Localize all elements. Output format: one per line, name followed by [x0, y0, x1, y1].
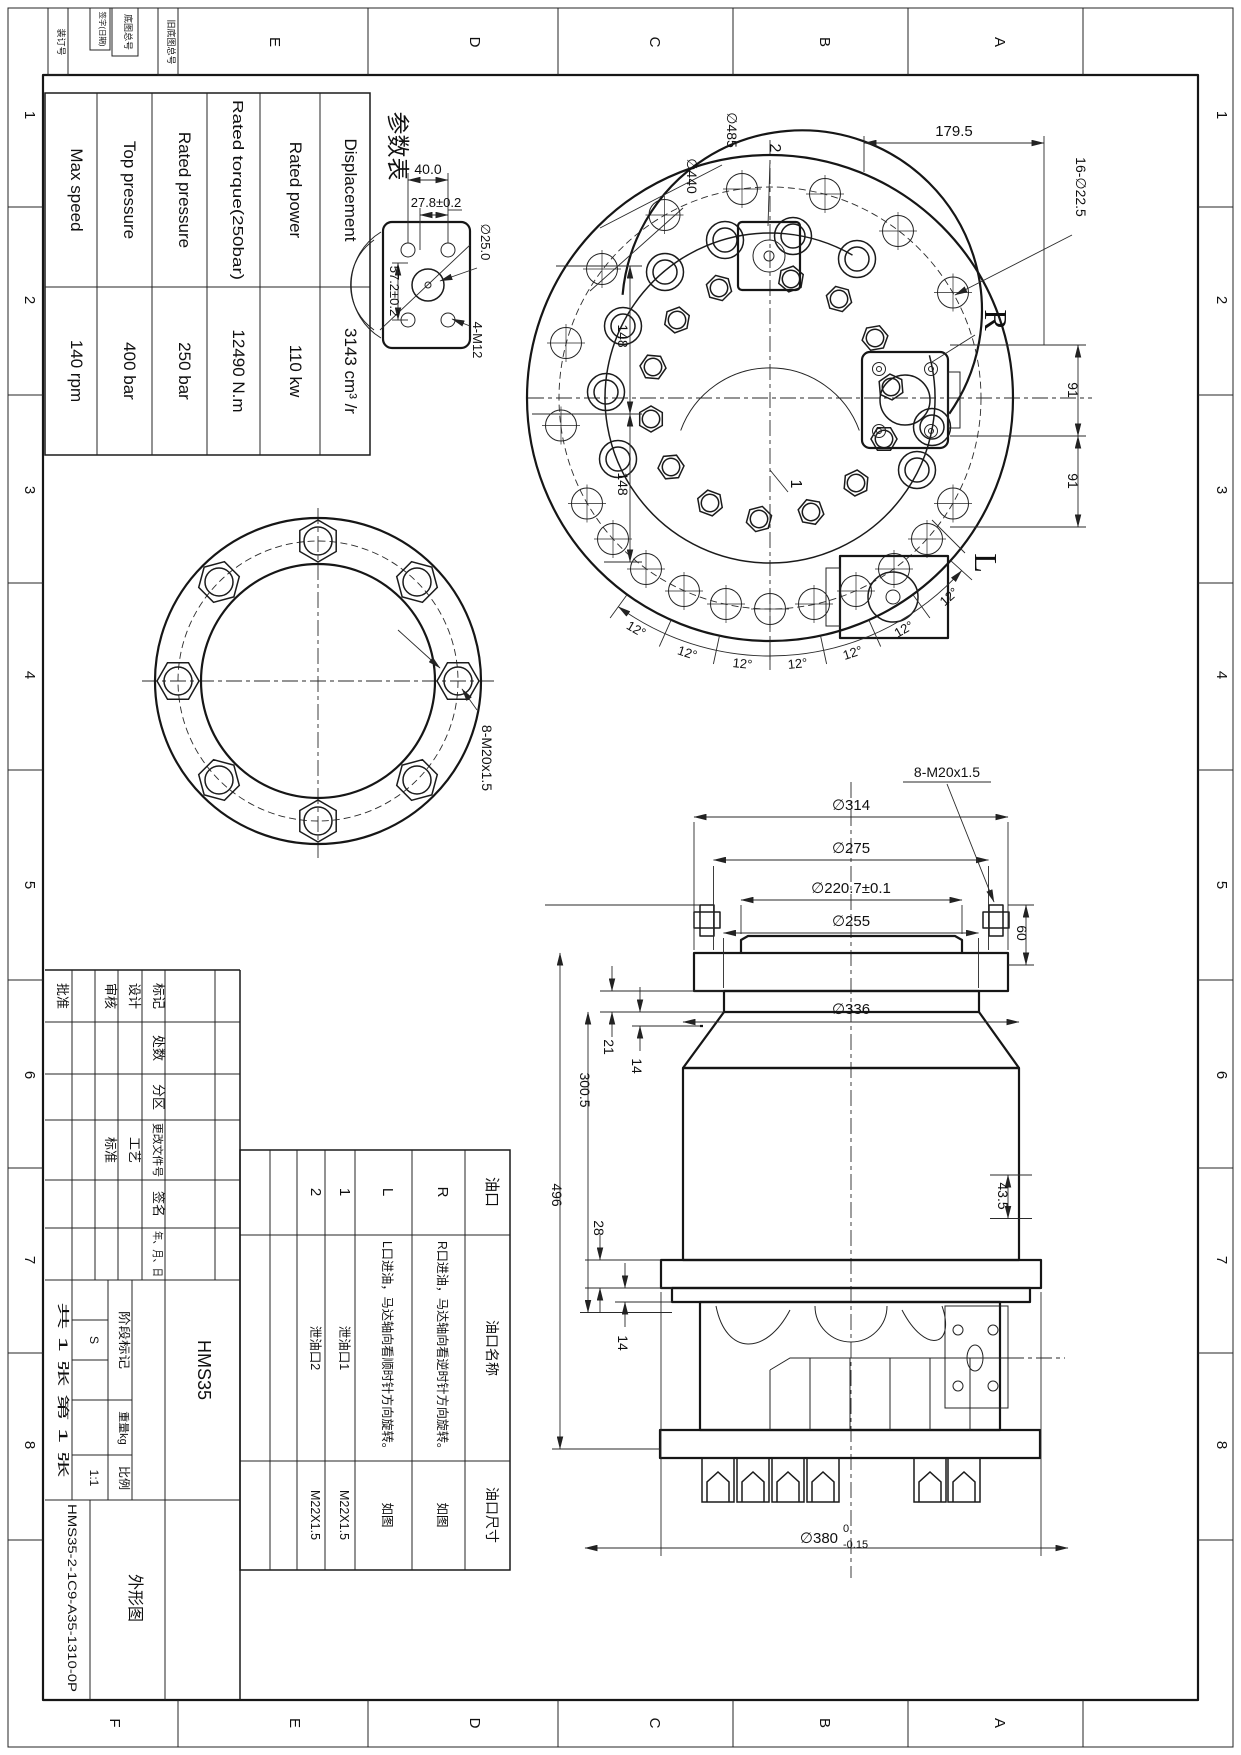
dim-12deg: 12° [841, 643, 864, 663]
port-size: 如图 [435, 1502, 450, 1527]
dim-8-m20: 8-M20x1.5 [479, 725, 495, 791]
param-label: Max speed [67, 148, 86, 231]
zone-number: 7 [21, 1256, 38, 1264]
port-size-header: 油口尺寸 [484, 1487, 500, 1543]
zone-letter: B [816, 37, 833, 47]
zone-number: 1 [21, 111, 38, 119]
margin-cells: 装订号 签字(日期) 底图总号 旧底图总号 [48, 8, 178, 75]
side-view: ∅314 ∅275 ∅220.7±0.1 ∅255 ∅336 8-M20x1.5… [545, 764, 1068, 1578]
tb-scale-value: 1:1 [87, 1470, 101, 1487]
zone-number: 5 [21, 881, 38, 889]
angle-spokes [610, 561, 972, 670]
dim-d336: ∅336 [832, 1001, 870, 1018]
zone-number: 6 [21, 1071, 38, 1079]
dim-4-m12: 4-M12 [470, 322, 485, 359]
label-port-l: L [968, 553, 1004, 573]
zone-letter: A [991, 1718, 1008, 1728]
dim-14a: 14 [629, 1058, 645, 1074]
param-value: 110 kw [286, 345, 305, 398]
dim-12deg: 12° [676, 643, 699, 663]
dim-12deg: 12° [624, 618, 649, 641]
title-block: 标记 处数 分区 更改文件号 签名 年、月、日 设计 工艺 审核 标准 批准 阶… [45, 970, 240, 1700]
oil-port-table: 油口 油口名称 油口尺寸 R L 1 2 R口进油，马达轴向看逆时针方向旋转。 … [240, 1150, 510, 1570]
tb-model: HMS35 [194, 1340, 214, 1400]
tb-drawing-name: 外形图 [126, 1574, 144, 1622]
zone-letter: C [646, 37, 663, 48]
margin-master-no: 底图总号 [123, 14, 134, 50]
param-label: Displacement [341, 139, 360, 242]
parameter-table: 参数表 Displacement Rated power Rated torqu… [45, 93, 411, 455]
zone-letter: C [646, 1718, 663, 1729]
zone-letter: D [466, 37, 483, 48]
zone-number: 8 [1213, 1441, 1230, 1449]
dim-21: 21 [601, 1039, 617, 1055]
param-value: 250 bar [175, 342, 194, 400]
tb-sign: 签名 [151, 1191, 166, 1217]
zone-number: 1 [1213, 111, 1230, 119]
tb-weight-label: 重量kg [117, 1411, 131, 1445]
param-value: 12490 N.m [229, 329, 248, 412]
port-name-header: 油口名称 [484, 1320, 500, 1376]
dim-57-2: 57.2±0.2 [387, 266, 402, 317]
zone-number: 2 [1213, 296, 1230, 304]
dim-40: 40.0 [414, 161, 441, 177]
tb-zone: 分区 [151, 1084, 166, 1110]
zone-number: 6 [1213, 1071, 1230, 1079]
port-size: M22X1.5 [337, 1490, 351, 1540]
port-name: 泄油口2 [308, 1326, 322, 1371]
param-value: 3143 cm³ /r [341, 328, 360, 414]
zone-number: 5 [1213, 881, 1230, 889]
dim-60: 60 [1014, 925, 1030, 941]
dim-25: ∅25.0 [478, 224, 493, 261]
tb-scale-label: 比例 [117, 1466, 131, 1490]
callout-1: 1 [787, 480, 804, 489]
port-name: L口进油，马达轴向看顺时针方向旋转。 [380, 1241, 395, 1455]
label-port-r: R [978, 309, 1014, 331]
zone-letter: B [816, 1718, 833, 1728]
param-label: Top pressure [120, 141, 139, 239]
zone-letter: E [286, 1718, 303, 1728]
margin-signature-date: 签字(日期) [98, 12, 108, 47]
zone-letter: D [466, 1718, 483, 1729]
dim-d2207: ∅220.7±0.1 [811, 880, 891, 897]
zone-number: 2 [21, 296, 38, 304]
param-label: Rated power [286, 142, 305, 239]
param-value: 400 bar [120, 342, 139, 400]
dim-12deg: 12° [732, 655, 753, 672]
dim-d255: ∅255 [832, 913, 870, 930]
zone-letter: A [991, 37, 1008, 47]
engineering-drawing: 1 2 3 4 5 6 7 8 1 2 3 4 5 6 7 8 E D C B … [0, 0, 1241, 1755]
front-view: 179.5 16-∅22.5 ∅485 ∅440 2 1 R L 148 148 [527, 112, 1092, 672]
margin-old-master-no: 旧底图总号 [166, 19, 177, 64]
callout-2: 2 [766, 144, 783, 153]
drawing-sheet: 1 2 3 4 5 6 7 8 1 2 3 4 5 6 7 8 E D C B … [0, 0, 1241, 1755]
bottom-bolts [702, 1458, 980, 1502]
tb-design: 设计 [127, 983, 142, 1009]
dim-148-upper: 148 [615, 324, 631, 348]
rim-holes [542, 170, 972, 628]
dim-91-upper: 91 [1065, 382, 1081, 398]
zone-number: 3 [1213, 486, 1230, 494]
zone-letter: E [266, 37, 283, 47]
detail-view: 40.0 27.8±0.2 57.2±0.2 ∅25.0 4-M12 [351, 161, 493, 358]
port-id: 1 [336, 1188, 353, 1196]
param-value: 140 rpm [67, 340, 86, 402]
zone-number: 4 [21, 671, 38, 679]
dim-d485: ∅485 [724, 112, 740, 148]
zone-number: 4 [1213, 671, 1230, 679]
dim-148-lower: 148 [615, 472, 631, 496]
dim-27-8: 27.8±0.2 [411, 195, 462, 210]
tb-stage-label: 阶段标记 [117, 1311, 132, 1369]
port-size: 如图 [380, 1502, 395, 1527]
dim-16-d22-5: 16-∅22.5 [1073, 157, 1089, 217]
param-label: Rated pressure [175, 132, 194, 248]
dim-d275: ∅275 [832, 840, 870, 857]
zone-letter: F [106, 1718, 123, 1727]
port-name: R口进油，马达轴向看逆时针方向旋转。 [435, 1241, 450, 1455]
dim-91-lower: 91 [1065, 473, 1081, 489]
tb-count: 处数 [151, 1035, 166, 1061]
tb-part-no: HMS35-2-1C9-A35-1310-0P [65, 1504, 79, 1692]
dim-43-5: 43.5 [995, 1182, 1011, 1209]
zone-number: 3 [21, 486, 38, 494]
tb-doc-no: 更改文件号 [151, 1123, 165, 1177]
port-id: R [434, 1187, 451, 1198]
port-id: 2 [307, 1188, 324, 1196]
dim-14b: 14 [615, 1335, 631, 1351]
dim-179-5: 179.5 [935, 123, 973, 140]
zone-number: 7 [1213, 1256, 1230, 1264]
dim-d380-tol-upper: 0 [843, 1523, 849, 1535]
dim-12deg: 12° [937, 585, 962, 609]
margin-binding-no: 装订号 [56, 28, 67, 55]
param-table-title: 参数表 [385, 112, 411, 181]
flange-view: 8-M20x1.5 [142, 508, 498, 858]
dim-496: 496 [549, 1183, 565, 1207]
tb-sheets: 共 1 张 第 1 张 [56, 1303, 70, 1478]
tb-mark: 标记 [151, 983, 166, 1009]
dim-28: 28 [591, 1220, 607, 1236]
tb-check: 审核 [103, 983, 118, 1009]
dim-d380: ∅380 [800, 1530, 838, 1547]
dim-d314: ∅314 [832, 797, 870, 814]
port-name: 泄油口1 [337, 1326, 351, 1371]
param-label: Rated torque(250bar) [229, 100, 246, 280]
dim-d380-tol-lower: -0.15 [843, 1539, 868, 1551]
dim-d440: ∅440 [684, 158, 700, 194]
port-col-header: 油口 [483, 1177, 500, 1207]
tb-stage-value: S [87, 1336, 101, 1344]
port-id: L [379, 1188, 396, 1196]
dim-12deg: 12° [787, 655, 808, 672]
tb-date: 年、月、日 [151, 1231, 165, 1277]
tb-approve: 批准 [55, 983, 70, 1009]
tb-process: 工艺 [127, 1137, 142, 1163]
dim-8-m20-side: 8-M20x1.5 [914, 764, 980, 780]
port-size: M22X1.5 [308, 1490, 322, 1540]
tb-standard: 标准 [103, 1137, 118, 1163]
zone-number: 8 [21, 1441, 38, 1449]
dim-300-5: 300.5 [577, 1072, 593, 1107]
